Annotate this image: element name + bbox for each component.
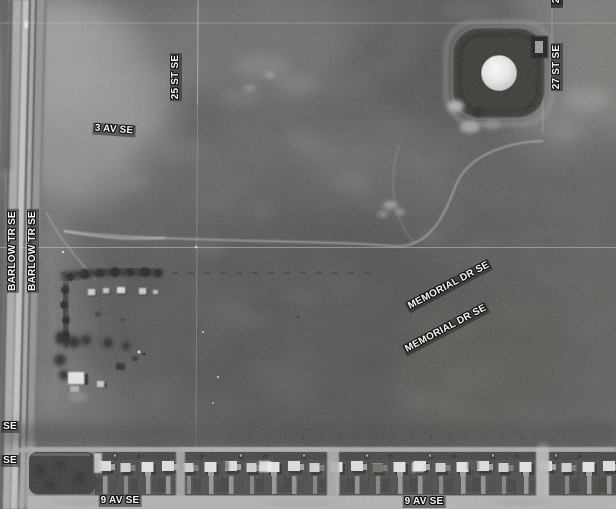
film-grain [0, 0, 616, 509]
aerial-imagery [0, 0, 616, 509]
map-viewport[interactable]: BARLOW TR SEBARLOW TR SE25 ST SE3 AV SE2… [0, 0, 616, 509]
